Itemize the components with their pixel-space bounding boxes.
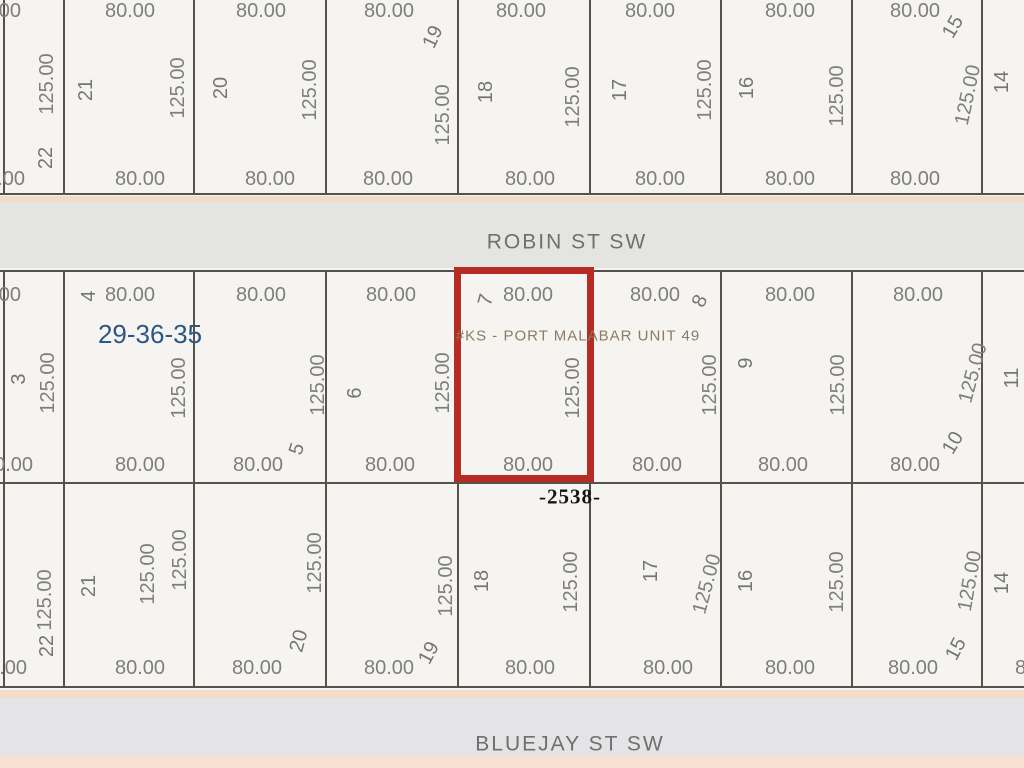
lot-line-vertical: [63, 483, 65, 687]
dimension-label: 80.00: [232, 658, 282, 678]
lot-number: 22: [37, 635, 57, 657]
lot-number: 14: [992, 572, 1012, 594]
lot-number: 19: [415, 638, 443, 667]
dimension-label: 80.00: [643, 658, 693, 678]
dimension-label: 80.00: [245, 169, 295, 189]
lot-line-vertical: [851, 0, 853, 194]
lot-number: 16: [736, 570, 756, 592]
dimension-label: 80.00: [1015, 658, 1024, 678]
dimension-label: 125.00: [827, 551, 847, 612]
lot-line-vertical: [981, 483, 983, 687]
lot-line-horizontal: [0, 686, 1024, 688]
dimension-label: 80.00: [115, 658, 165, 678]
dimension-label: 80.00: [893, 285, 943, 305]
lot-number: 20: [211, 77, 231, 99]
dimension-label: 80.00: [765, 285, 815, 305]
dimension-label: 80.00: [105, 285, 155, 305]
lot-number: 21: [79, 575, 99, 597]
dimension-label: 80.00: [890, 169, 940, 189]
lot-line-vertical: [193, 0, 195, 194]
lot-line-horizontal: [0, 193, 1024, 195]
lot-line-vertical: [457, 483, 459, 687]
dimension-label: 125.00: [433, 84, 453, 145]
lot-number: 6: [345, 387, 365, 398]
dimension-label: 80.00: [0, 1, 21, 21]
dimension-label: 125.00: [952, 63, 984, 127]
lot-number: 15: [939, 12, 967, 41]
lot-number: 8: [689, 292, 712, 311]
lot-number: 21: [76, 79, 96, 101]
lot-line-horizontal: [0, 482, 1024, 484]
lot-number: 18: [476, 81, 496, 103]
dimension-label: 80.00: [890, 455, 940, 475]
lot-line-vertical: [63, 271, 65, 483]
dimension-label: 125.00: [436, 555, 456, 616]
lot-number: 5: [286, 441, 308, 458]
dimension-label: 80.00: [0, 285, 21, 305]
section-township-range-label: 29-36-35: [98, 321, 202, 347]
dimension-label: 80.00: [115, 455, 165, 475]
dimension-label: 80.00: [758, 455, 808, 475]
lot-line-vertical: [193, 483, 195, 687]
street-name-robin: ROBIN ST SW: [487, 232, 647, 253]
dimension-label: 80.00: [236, 1, 286, 21]
lot-line-vertical: [193, 271, 195, 483]
dimension-label: 80.00: [630, 285, 680, 305]
lot-number: 9: [736, 357, 756, 368]
dimension-label: 125.00: [563, 357, 583, 418]
lot-line-vertical: [851, 271, 853, 483]
dimension-label: 125.00: [561, 551, 581, 612]
lot-number: 16: [737, 77, 757, 99]
dimension-label: 80.00: [364, 1, 414, 21]
dimension-label: 80.00: [365, 455, 415, 475]
dimension-label: 125.00: [170, 529, 190, 590]
lot-number: 10: [939, 428, 967, 457]
dimension-label: 80.00: [888, 658, 938, 678]
dimension-label: 125.00: [300, 59, 320, 120]
address-label: -2538-: [539, 487, 601, 508]
dimension-label: 80.00: [105, 1, 155, 21]
dimension-label: 125.00: [828, 354, 848, 415]
dimension-label: 125.00: [38, 352, 58, 413]
lot-number: 18: [472, 570, 492, 592]
lot-line-vertical: [720, 0, 722, 194]
dimension-label: 80.00: [890, 1, 940, 21]
dimension-label: 80.00: [635, 169, 685, 189]
dimension-label: 80.00: [625, 1, 675, 21]
dimension-label: 80.00: [364, 658, 414, 678]
street-band: [0, 690, 1024, 698]
dimension-label: 125.00: [138, 543, 158, 604]
dimension-label: 125.00: [700, 354, 720, 415]
lot-number: 20: [286, 628, 311, 655]
dimension-label: 125.00: [827, 65, 847, 126]
dimension-label: 125.00: [305, 532, 325, 593]
lot-number: 3: [9, 373, 29, 384]
dimension-label: 125.00: [955, 341, 990, 405]
lot-line-vertical: [589, 0, 591, 194]
lot-line-vertical: [457, 0, 459, 194]
street-name-bluejay: BLUEJAY ST SW: [475, 734, 664, 755]
dimension-label: 80.00: [0, 169, 25, 189]
dimension-label: 80.00: [765, 658, 815, 678]
lot-line-vertical: [3, 0, 5, 194]
dimension-label: 80.00: [0, 658, 27, 678]
lot-number: 14: [992, 71, 1012, 93]
lot-number: 15: [942, 634, 970, 663]
lot-line-vertical: [851, 483, 853, 687]
lot-line-vertical: [325, 0, 327, 194]
dimension-label: 80.00: [765, 169, 815, 189]
dimension-label: 125.00: [563, 66, 583, 127]
dimension-label: 80.00: [503, 455, 553, 475]
dimension-label: 80.00: [496, 1, 546, 21]
dimension-label: 80.00: [765, 1, 815, 21]
dimension-label: 125.00: [35, 569, 55, 630]
lot-number: 17: [641, 560, 661, 582]
lot-number: 19: [419, 23, 447, 52]
lot-line-vertical: [720, 483, 722, 687]
dimension-label: 80.00: [363, 169, 413, 189]
lot-line-vertical: [981, 0, 983, 194]
dimension-label: 80.00: [505, 658, 555, 678]
dimension-label: 80.00: [632, 455, 682, 475]
dimension-label: 125.00: [308, 354, 328, 415]
street-band: [0, 756, 1024, 768]
dimension-label: 80.00: [0, 455, 33, 475]
lot-number: 11: [1002, 368, 1022, 389]
plat-map-canvas: ROBIN ST SWBLUEJAY ST SW29-36-35#KS - PO…: [0, 0, 1024, 768]
dimension-label: 125.00: [695, 59, 715, 120]
dimension-label: 80.00: [233, 455, 283, 475]
dimension-label: 80.00: [236, 285, 286, 305]
subdivision-label: #KS - PORT MALABAR UNIT 49: [456, 329, 700, 344]
dimension-label: 125.00: [433, 352, 453, 413]
dimension-label: 125.00: [169, 357, 189, 418]
lot-line-vertical: [589, 483, 591, 687]
dimension-label: 125.00: [37, 53, 57, 114]
lot-number: 17: [610, 79, 630, 101]
lot-number: 22: [36, 147, 56, 169]
dimension-label: 80.00: [503, 285, 553, 305]
lot-line-vertical: [63, 0, 65, 194]
dimension-label: 80.00: [505, 169, 555, 189]
dimension-label: 80.00: [366, 285, 416, 305]
dimension-label: 80.00: [115, 169, 165, 189]
dimension-label: 125.00: [168, 57, 188, 118]
lot-number: 4: [79, 290, 99, 301]
